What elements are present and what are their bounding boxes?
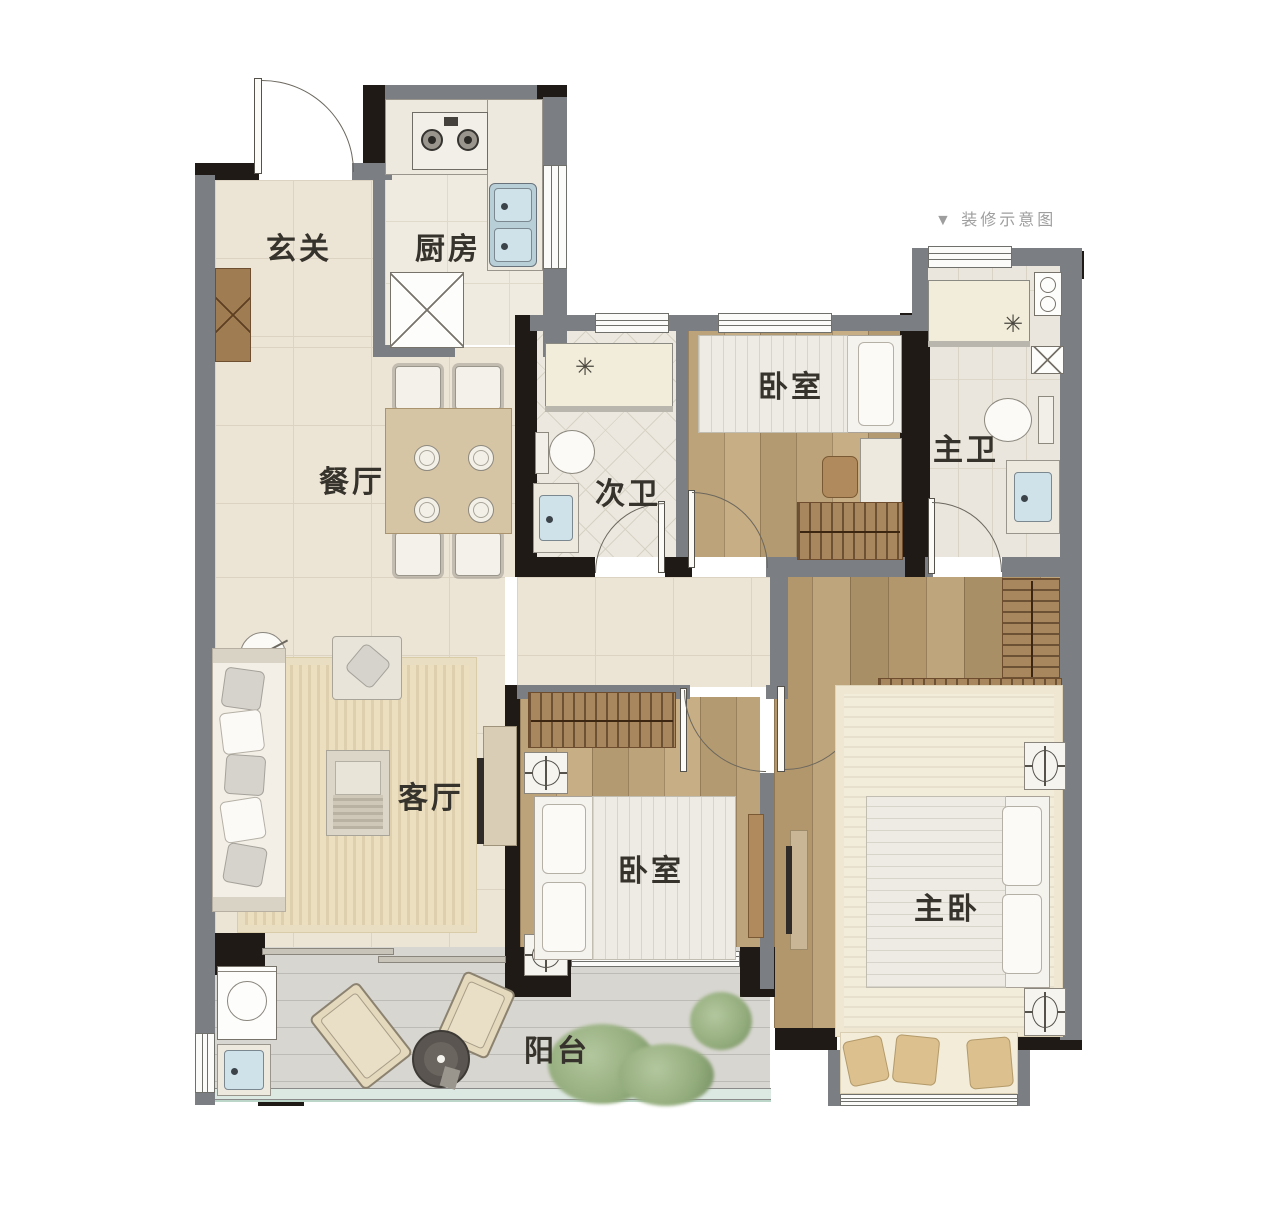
nightstand	[1024, 742, 1066, 790]
wardrobe	[797, 502, 903, 560]
armchair	[332, 636, 402, 700]
wall	[1018, 1050, 1030, 1106]
sofa-pillow	[219, 796, 267, 844]
washer-panel	[218, 971, 276, 972]
desk-chair	[822, 456, 858, 498]
water-heater	[1034, 272, 1062, 316]
vanity-basin	[1014, 472, 1052, 522]
sliding-door	[262, 948, 394, 955]
plant	[618, 1044, 714, 1106]
entry-door-arc	[262, 80, 354, 172]
room-label-bath-master: 主卫	[933, 425, 999, 469]
washing-machine	[217, 966, 277, 1040]
wall	[775, 1028, 837, 1050]
shower-stall	[545, 343, 673, 409]
sliding-door	[378, 956, 506, 963]
dining-chair	[395, 366, 441, 410]
bed-pillow	[858, 342, 894, 426]
place-setting	[468, 497, 494, 523]
floor-corridor	[517, 577, 770, 687]
heater-dial	[1040, 296, 1056, 312]
wall	[385, 85, 537, 99]
kitchen-sink	[489, 183, 537, 267]
wall	[543, 97, 567, 167]
room-label-foyer: 玄关	[266, 224, 332, 268]
shower-head-icon: ✳	[575, 356, 595, 380]
toilet-bowl	[549, 430, 595, 474]
window	[840, 1094, 1018, 1106]
stove-grate	[444, 117, 458, 126]
balcony-sink	[224, 1050, 264, 1090]
place-setting	[414, 445, 440, 471]
dining-table	[385, 408, 512, 534]
decoration-note: ▼ 装修示意图	[935, 206, 1056, 230]
room-label-bedroom-north: 卧室	[758, 362, 824, 406]
bedroom-master-door-leaf	[777, 686, 785, 772]
place-setting	[468, 445, 494, 471]
window	[543, 165, 567, 269]
sofa	[212, 648, 286, 912]
kitchen-cabinet	[390, 272, 464, 348]
room-label-kitchen: 厨房	[415, 224, 481, 268]
sofa-pillow	[219, 709, 266, 756]
balcony-table	[412, 1030, 470, 1088]
floor-plan: ✳ ✳	[0, 0, 1280, 1211]
entry-door-leaf	[254, 78, 262, 174]
wall	[770, 569, 788, 689]
sofa-pillow	[220, 666, 265, 711]
room-label-bedroom-master: 主卧	[914, 884, 980, 928]
stove-burner	[421, 129, 443, 151]
table-shelf	[333, 795, 383, 829]
bed-pillow	[542, 804, 586, 874]
walk-in-closet	[1002, 578, 1060, 680]
tv-screen	[786, 846, 792, 934]
window	[718, 313, 832, 333]
wall	[1002, 557, 1065, 577]
wall	[828, 1050, 840, 1106]
wall	[195, 175, 215, 1105]
wall	[912, 248, 928, 318]
shower-glass	[545, 406, 673, 412]
place-setting	[414, 497, 440, 523]
shower-head-icon: ✳	[1003, 313, 1023, 337]
seat-pillow	[892, 1034, 941, 1086]
vanity-basin	[539, 495, 573, 541]
room-label-balcony: 阳台	[524, 1026, 590, 1070]
dining-chair	[395, 532, 441, 576]
wall	[373, 180, 385, 347]
bed-pillow	[542, 882, 586, 952]
stove-burner	[457, 129, 479, 151]
sink-basin	[494, 188, 532, 222]
room-label-dining: 餐厅	[319, 457, 385, 501]
dining-chair	[455, 366, 501, 410]
shower-glass	[928, 341, 1030, 347]
window	[928, 246, 1012, 268]
plant	[690, 992, 752, 1050]
seat-pillow	[966, 1036, 1014, 1090]
wardrobe	[528, 692, 676, 748]
armchair-pillow	[344, 642, 392, 690]
tv-console	[790, 830, 808, 950]
nightstand	[524, 752, 568, 794]
window	[195, 1033, 215, 1093]
stove	[412, 112, 488, 170]
coffee-table	[326, 750, 390, 836]
sink-basin	[494, 228, 532, 262]
nightstand	[1024, 988, 1066, 1036]
sofa-armrest	[213, 649, 285, 663]
table-tray	[335, 761, 381, 795]
room-label-living: 客厅	[398, 773, 464, 817]
toilet-tank	[1038, 396, 1054, 444]
toilet-tank	[535, 432, 549, 474]
wall	[515, 557, 595, 577]
tv-screen	[477, 758, 484, 844]
bed-pillow	[1002, 894, 1042, 974]
room-label-bedroom-second: 卧室	[618, 846, 684, 890]
bedroom-console	[748, 814, 764, 938]
wall	[676, 315, 688, 557]
wall	[900, 313, 930, 577]
room-label-bath-second: 次卫	[595, 469, 661, 513]
bed-pillow	[1002, 806, 1042, 886]
duct-shaft	[1031, 346, 1064, 374]
sofa-pillow	[224, 754, 267, 797]
tv-console	[483, 726, 517, 846]
dining-chair	[455, 532, 501, 576]
sofa-armrest	[213, 897, 285, 911]
heater-dial	[1040, 277, 1056, 293]
washer-drum	[227, 981, 267, 1021]
table-center	[437, 1055, 445, 1063]
shoe-cabinet	[215, 268, 251, 362]
sofa-pillow	[222, 842, 268, 888]
window	[595, 313, 669, 333]
